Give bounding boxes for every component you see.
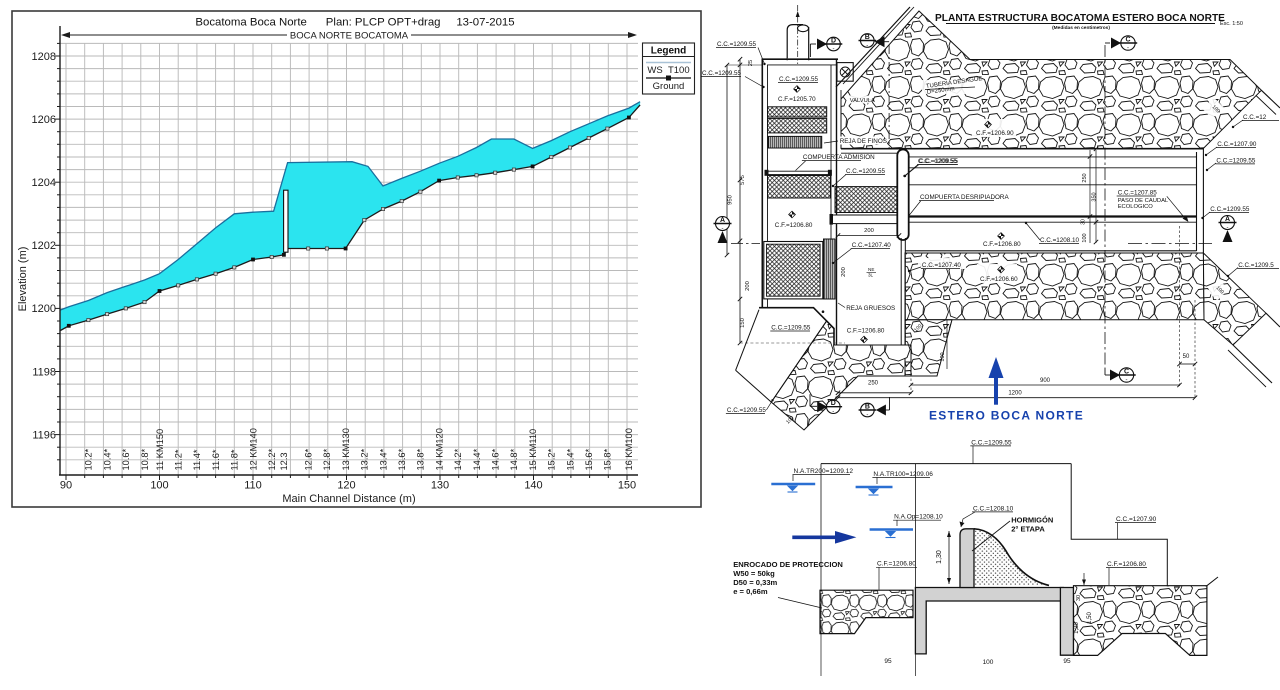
svg-text:14.2*: 14.2* [453, 448, 463, 470]
svg-text:1208: 1208 [32, 51, 56, 63]
svg-text:900: 900 [1040, 378, 1051, 384]
svg-text:C.C.=1209.55: C.C.=1209.55 [846, 168, 886, 175]
svg-text:C.C.=1207.40: C.C.=1207.40 [852, 242, 892, 249]
svg-text:1204: 1204 [32, 177, 56, 189]
svg-text:150: 150 [740, 318, 746, 328]
svg-text:100: 100 [1082, 233, 1088, 242]
svg-text:250: 250 [1082, 173, 1088, 182]
svg-text:11.8*: 11.8* [230, 449, 240, 470]
svg-text:C.F.=1206.80: C.F.=1206.80 [847, 327, 885, 334]
svg-text:C.F.=1206.80: C.F.=1206.80 [775, 222, 813, 229]
svg-text:C.C.=1209.55: C.C.=1209.55 [717, 41, 757, 48]
svg-text:100: 100 [150, 480, 168, 492]
svg-text:12.2*: 12.2* [267, 448, 277, 470]
svg-text:575: 575 [740, 175, 746, 185]
svg-text:ENROCADO DE PROTECCION: ENROCADO DE PROTECCION [733, 560, 843, 569]
svg-text:1198: 1198 [32, 366, 56, 378]
svg-text:1196: 1196 [32, 429, 56, 441]
svg-text:14.8*: 14.8* [509, 448, 519, 470]
svg-text:C.C.=1207.90: C.C.=1207.90 [1116, 516, 1157, 523]
svg-text:12.6*: 12.6* [304, 448, 314, 470]
svg-text:1,50: 1,50 [1087, 612, 1093, 624]
svg-text:Legend: Legend [651, 46, 687, 57]
svg-text:10.4*: 10.4* [102, 448, 112, 470]
svg-text:BOCA NORTE BOCATOMA: BOCA NORTE BOCATOMA [290, 31, 409, 42]
svg-text:COMPUERTA ADMISION: COMPUERTA ADMISION [803, 154, 875, 161]
svg-text:B: B [865, 404, 870, 411]
svg-text:C.C.=1209.55: C.C.=1209.55 [971, 439, 1012, 446]
svg-text:C: C [1124, 369, 1129, 376]
svg-text:12.3: 12.3 [279, 452, 289, 470]
svg-text:Esc. 1:50: Esc. 1:50 [1220, 21, 1243, 27]
svg-text:e = 0,66m: e = 0,66m [733, 587, 768, 596]
svg-text:12 KM140: 12 KM140 [248, 428, 258, 470]
svg-text:C.C.=1207.85: C.C.=1207.85 [1118, 189, 1158, 196]
svg-text:15.4*: 15.4* [565, 448, 575, 470]
svg-text:REJA DE FINOS: REJA DE FINOS [840, 138, 887, 145]
svg-text:N.A.TR100=1209.06: N.A.TR100=1209.06 [873, 471, 933, 478]
svg-text:C.C.=1209.55: C.C.=1209.55 [771, 324, 811, 331]
svg-text:B: B [865, 34, 870, 41]
svg-text:N.A.TR200=1209.12: N.A.TR200=1209.12 [794, 468, 854, 475]
svg-text:200: 200 [745, 281, 751, 291]
svg-text:HORMIGÓN: HORMIGÓN [1011, 516, 1053, 525]
svg-text:110: 110 [244, 480, 262, 492]
svg-text:120: 120 [337, 480, 355, 492]
svg-text:350: 350 [1092, 192, 1098, 201]
svg-text:10.2*: 10.2* [84, 448, 94, 470]
svg-text:150: 150 [618, 480, 636, 492]
svg-text:11.2*: 11.2* [174, 449, 184, 470]
svg-text:100: 100 [940, 352, 946, 361]
svg-text:15.2*: 15.2* [547, 448, 557, 470]
svg-text:1200: 1200 [32, 303, 56, 315]
svg-text:C.C.=1209.55: C.C.=1209.55 [919, 158, 959, 165]
svg-text:14.4*: 14.4* [472, 448, 482, 470]
svg-text:A: A [1225, 216, 1230, 223]
svg-text:12.8*: 12.8* [322, 448, 332, 470]
svg-text:50: 50 [1183, 354, 1190, 360]
svg-text:11.6*: 11.6* [211, 449, 221, 470]
svg-text:C.F.=1206.80: C.F.=1206.80 [1107, 561, 1146, 568]
svg-text:C.C.=1207.90: C.C.=1207.90 [1217, 141, 1257, 148]
svg-text:N.A.Op=1208.10: N.A.Op=1208.10 [894, 514, 943, 521]
svg-text:W50 = 50kg: W50 = 50kg [733, 569, 775, 578]
svg-text:13.6*: 13.6* [397, 448, 407, 470]
svg-text:90: 90 [60, 480, 72, 492]
svg-text:16 KM100: 16 KM100 [624, 428, 634, 470]
svg-text:25: 25 [748, 60, 754, 66]
svg-text:10.8*: 10.8* [140, 448, 150, 470]
svg-text:3L: 3L [868, 273, 874, 278]
svg-text:VALVULA: VALVULA [850, 98, 875, 104]
svg-text:C.C.=1209.5: C.C.=1209.5 [1238, 262, 1274, 269]
svg-text:C.F.=1205.70: C.F.=1205.70 [778, 96, 816, 103]
svg-text:15.6*: 15.6* [584, 448, 594, 470]
svg-text:A: A [720, 217, 725, 224]
svg-text:C.C.=1209.55: C.C.=1209.55 [727, 407, 767, 414]
svg-text:Ground: Ground [653, 81, 685, 92]
svg-text:130: 130 [431, 480, 449, 492]
svg-text:C.C.=1209.55: C.C.=1209.55 [1210, 206, 1250, 213]
svg-text:C.F.=1206.80: C.F.=1206.80 [983, 241, 1021, 248]
svg-text:-: - [1126, 378, 1128, 384]
svg-text:200: 200 [841, 267, 847, 277]
svg-text:D: D [831, 400, 836, 407]
svg-text:1206: 1206 [32, 114, 56, 126]
svg-text:Main Channel Distance (m): Main Channel Distance (m) [282, 493, 415, 505]
svg-text:C.C.=1209.55: C.C.=1209.55 [1216, 157, 1256, 164]
svg-text:Bocatoma Boca Norte Plan:: Bocatoma Boca Norte Plan: PLCP OPT+drag … [195, 17, 514, 29]
svg-text:C.C.=1209.55: C.C.=1209.55 [702, 70, 742, 77]
svg-text:C.F.=1206.80: C.F.=1206.80 [877, 561, 916, 568]
svg-text:11.4*: 11.4* [192, 449, 202, 470]
svg-text:ESTERO BOCA NORTE: ESTERO BOCA NORTE [929, 409, 1084, 423]
svg-text:PLANTA ESTRUCTURA BOCATOMA EST: PLANTA ESTRUCTURA BOCATOMA ESTERO BOCA N… [935, 13, 1225, 24]
svg-text:13.8*: 13.8* [416, 448, 426, 470]
svg-text:95: 95 [1063, 658, 1071, 665]
svg-text:C.C.=1209.55: C.C.=1209.55 [779, 76, 819, 83]
svg-text:1,30: 1,30 [936, 550, 943, 564]
svg-text:1202: 1202 [32, 240, 56, 252]
svg-text:10.6*: 10.6* [121, 448, 131, 470]
svg-text:C: C [1125, 37, 1130, 44]
svg-text:ECOLOGICO: ECOLOGICO [1118, 204, 1154, 210]
svg-text:1,20: 1,20 [1074, 622, 1080, 634]
svg-text:-: - [866, 43, 868, 49]
svg-text:14 KM120: 14 KM120 [434, 428, 444, 470]
svg-text:15.8*: 15.8* [603, 448, 613, 470]
svg-text:13.2*: 13.2* [360, 448, 370, 470]
svg-text:C.C.=1208.10: C.C.=1208.10 [973, 505, 1014, 512]
svg-text:-: - [833, 47, 835, 53]
svg-text:950: 950 [728, 195, 734, 205]
svg-text:COMPUERTA DESRIPIADORA: COMPUERTA DESRIPIADORA [920, 194, 1009, 201]
svg-text:-: - [866, 413, 868, 419]
svg-text:15 KM110: 15 KM110 [528, 429, 538, 471]
svg-text:13.4*: 13.4* [378, 448, 388, 470]
svg-text:C.F.=1206.60: C.F.=1206.60 [980, 276, 1018, 283]
svg-text:30: 30 [1076, 595, 1082, 601]
svg-text:-: - [832, 409, 834, 415]
svg-text:95: 95 [884, 658, 892, 665]
svg-text:(Medidas en centimetros): (Medidas en centimetros) [1052, 25, 1110, 31]
svg-text:C.C.=12: C.C.=12 [1243, 114, 1267, 121]
svg-text:30: 30 [1081, 219, 1087, 225]
svg-text:D: D [831, 38, 836, 45]
svg-text:250: 250 [868, 381, 879, 387]
svg-text:D50 = 0,33m: D50 = 0,33m [733, 578, 777, 587]
svg-text:100: 100 [983, 659, 994, 666]
svg-text:2° ETAPA: 2° ETAPA [1011, 525, 1045, 534]
svg-text:Elevation (m): Elevation (m) [17, 247, 29, 312]
svg-text:REJA GRUESOS: REJA GRUESOS [846, 305, 895, 312]
svg-text:C.F.=1206.90: C.F.=1206.90 [976, 130, 1014, 137]
svg-text:1200: 1200 [1008, 391, 1022, 397]
svg-text:C.C.=1208.10: C.C.=1208.10 [1040, 237, 1080, 244]
svg-text:140: 140 [524, 480, 542, 492]
svg-text:NE: NE [868, 267, 874, 272]
svg-text:C.C.=1207.40: C.C.=1207.40 [922, 262, 962, 269]
svg-text:-: - [1127, 46, 1129, 52]
svg-text:11 KM150: 11 KM150 [155, 429, 165, 471]
svg-text:WS T100: WS T100 [647, 65, 689, 76]
svg-text:14.6*: 14.6* [491, 448, 501, 470]
svg-text:200: 200 [864, 228, 874, 234]
svg-text:13 KM130: 13 KM130 [341, 428, 351, 470]
